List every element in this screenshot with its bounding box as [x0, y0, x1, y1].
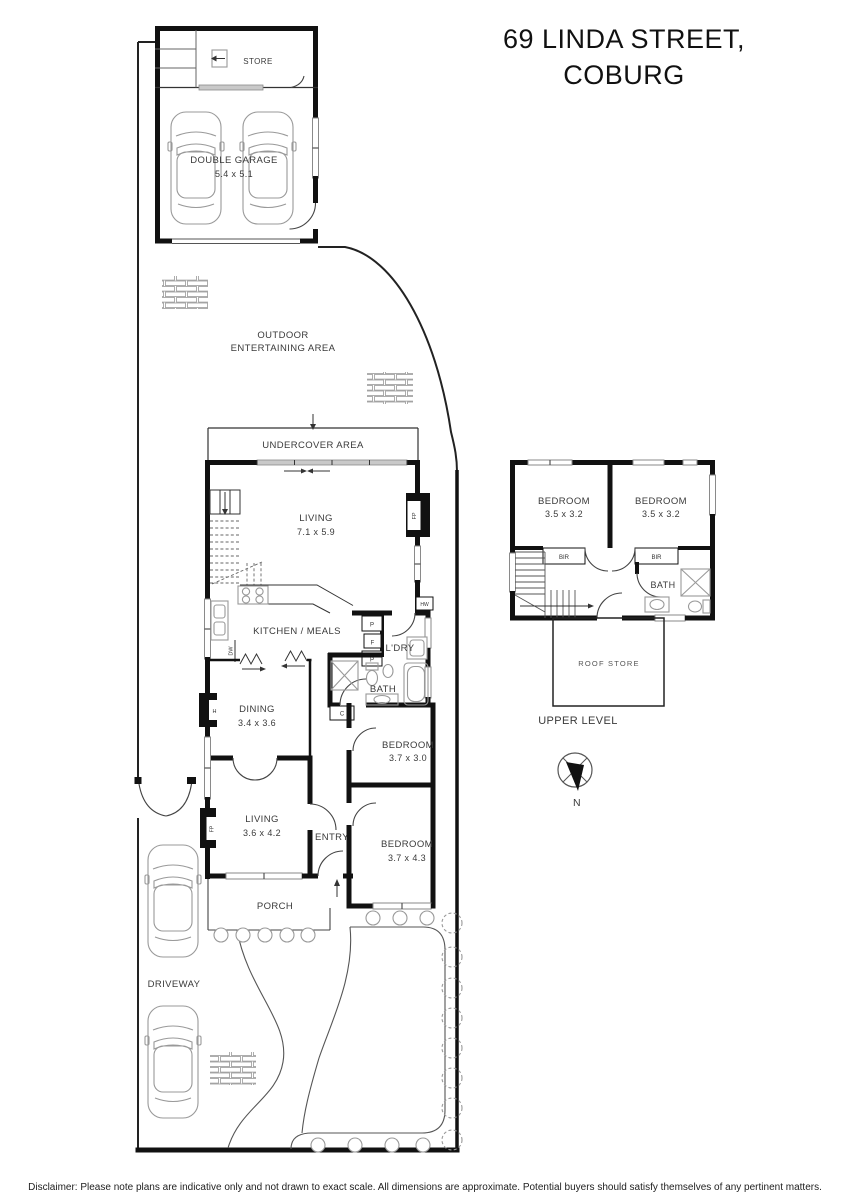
roof-store-label: ROOF STORE: [578, 659, 639, 668]
laundry-label: L'DRY: [386, 643, 415, 654]
bedroom-front-label: BEDROOM: [381, 839, 433, 850]
opening-zigzag-icon: [240, 654, 262, 664]
bedroom-rear-dims: 3.7 x 3.0: [389, 753, 427, 763]
compass-north-label: N: [573, 797, 581, 809]
heater-label: H: [213, 709, 217, 715]
cooktop-icon: [238, 586, 268, 604]
heater-icon: H: [199, 693, 220, 727]
bath-label: BATH: [370, 684, 396, 695]
upper-bedroom-left-label: BEDROOM: [538, 496, 590, 507]
shower-icon: [331, 661, 358, 690]
upper-level: BIR BIR BATH BEDROOM 3.5 x 3.2 BEDROO: [510, 460, 716, 727]
bir-right-label: BIR: [651, 555, 662, 561]
entry-label: ENTRY: [315, 832, 349, 843]
outdoor-entertaining-area: OUTDOOR ENTERTAINING AREA: [162, 276, 413, 404]
hot-water-icon: HW: [416, 597, 433, 610]
bir-left-label: BIR: [559, 555, 570, 561]
store-room: STORE: [155, 30, 318, 90]
living-front-label: LIVING: [245, 814, 279, 825]
fp-living-label: FP: [412, 512, 418, 519]
paving-icon: [210, 1052, 256, 1085]
garden-path-edge: [302, 927, 351, 1133]
outdoor-label-line2: ENTERTAINING AREA: [231, 343, 336, 354]
upper-bedroom-right-label: BEDROOM: [635, 496, 687, 507]
fp-lounge-label: FP: [210, 825, 216, 832]
outdoor-label-line1: OUTDOOR: [257, 330, 308, 341]
bathtub-icon: [404, 663, 428, 705]
undercover-area: UNDERCOVER AREA: [208, 414, 418, 460]
living-rear-label: LIVING: [299, 513, 333, 524]
hw-label: HW: [420, 602, 429, 608]
roof-store: ROOF STORE: [553, 618, 664, 706]
bedrooms: BEDROOM 3.7 x 3.0 BEDROOM 3.7 x 4.3: [347, 703, 436, 909]
stairs-main: [210, 490, 262, 585]
porch: PORCH: [208, 879, 340, 930]
garage-roller-door: [172, 239, 300, 244]
car-icon: [168, 112, 224, 224]
dining-dims: 3.4 x 3.6: [238, 718, 276, 728]
garage: STORE DOUBLE GARAGE 5.4 x 5.1: [155, 26, 319, 244]
kitchen-label: KITCHEN / MEALS: [253, 626, 341, 637]
disclaimer-text: Disclaimer: Please note plans are indica…: [28, 1182, 822, 1193]
pantry1-label: P: [370, 623, 374, 629]
basin-icon: [383, 665, 393, 678]
store-shelves-icon: [155, 30, 196, 88]
compass-icon: N: [558, 753, 592, 809]
car-icon: [240, 112, 296, 224]
sink-icon: [211, 601, 228, 640]
fireplace-icon: FP: [200, 808, 217, 848]
dw-label: DW: [229, 646, 235, 656]
driveway-gate-icon: [135, 777, 197, 816]
floor-plan-canvas: 69 LINDA STREET, COBURG: [0, 0, 849, 1200]
kitchen: DW KITCHEN / MEALS: [211, 585, 353, 662]
floor-plan-page: 69 LINDA STREET, COBURG: [0, 0, 849, 1200]
dining-label: DINING: [239, 704, 275, 715]
bedroom-rear-label: BEDROOM: [382, 740, 434, 751]
toilet-icon: [703, 600, 710, 613]
front-garden: [210, 911, 462, 1152]
upper-bath-label: BATH: [651, 580, 676, 590]
store-sliding-door: [199, 85, 263, 90]
cupboard-label: C: [340, 712, 345, 718]
garden-path-edge: [228, 930, 284, 1148]
living-rear-dims: 7.1 x 5.9: [297, 527, 335, 537]
driveway: DRIVEWAY: [145, 845, 201, 1118]
dining: H DINING 3.4 x 3.6: [199, 651, 313, 810]
upper-bath: BATH: [637, 562, 710, 613]
driveway-label: DRIVEWAY: [148, 979, 201, 990]
upper-bedroom-right-dims: 3.5 x 3.2: [642, 509, 680, 519]
plan-title: 69 LINDA STREET, COBURG: [503, 24, 745, 90]
car-icon: [145, 1006, 201, 1118]
bedroom-front-dims: 3.7 x 4.3: [388, 853, 426, 863]
fireplace-icon: FP: [406, 493, 430, 537]
title-line2: COBURG: [563, 60, 685, 90]
paving-icon: [367, 372, 413, 404]
porch-label: PORCH: [257, 901, 293, 912]
opening-zigzag-icon: [285, 651, 307, 661]
title-line1: 69 LINDA STREET,: [503, 24, 745, 54]
fridge-label: F: [371, 641, 375, 647]
garage-dims: 5.4 x 5.1: [215, 169, 253, 179]
upper-bedroom-left-dims: 3.5 x 3.2: [545, 509, 583, 519]
store-label: STORE: [243, 57, 272, 66]
living-front-dims: 3.6 x 4.2: [243, 828, 281, 838]
undercover-label: UNDERCOVER AREA: [262, 440, 364, 451]
living-front: FP LIVING 3.6 x 4.2 ENTRY: [200, 756, 353, 879]
garage-label: DOUBLE GARAGE: [190, 155, 278, 166]
paving-icon: [162, 276, 208, 309]
front-door-arc: [318, 851, 343, 876]
upper-level-label: UPPER LEVEL: [538, 715, 618, 727]
garden-bed-outline: [291, 927, 445, 1149]
car-icon: [145, 845, 201, 957]
